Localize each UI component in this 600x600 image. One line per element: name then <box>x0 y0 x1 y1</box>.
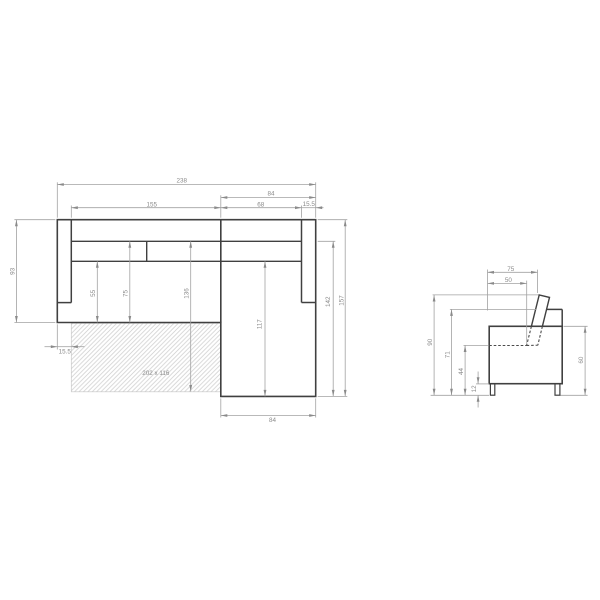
svg-text:238: 238 <box>176 178 187 185</box>
svg-text:75: 75 <box>507 266 515 273</box>
svg-text:90: 90 <box>427 338 434 346</box>
svg-text:60: 60 <box>578 356 585 364</box>
svg-text:71: 71 <box>444 351 451 359</box>
svg-text:93: 93 <box>9 267 16 275</box>
svg-text:68: 68 <box>257 201 265 208</box>
svg-text:84: 84 <box>269 417 277 424</box>
svg-text:55: 55 <box>90 289 97 297</box>
svg-text:84: 84 <box>267 191 275 198</box>
svg-text:155: 155 <box>147 201 158 208</box>
svg-text:15.5: 15.5 <box>59 348 72 355</box>
svg-text:15.5: 15.5 <box>303 201 316 208</box>
svg-text:117: 117 <box>256 319 263 330</box>
svg-text:44: 44 <box>458 368 465 376</box>
svg-text:142: 142 <box>325 296 332 307</box>
svg-text:136: 136 <box>184 288 191 299</box>
svg-text:202 x 116: 202 x 116 <box>142 370 170 377</box>
svg-text:12: 12 <box>471 385 478 393</box>
svg-text:157: 157 <box>338 295 345 306</box>
svg-text:50: 50 <box>505 277 513 284</box>
svg-text:75: 75 <box>122 290 129 298</box>
